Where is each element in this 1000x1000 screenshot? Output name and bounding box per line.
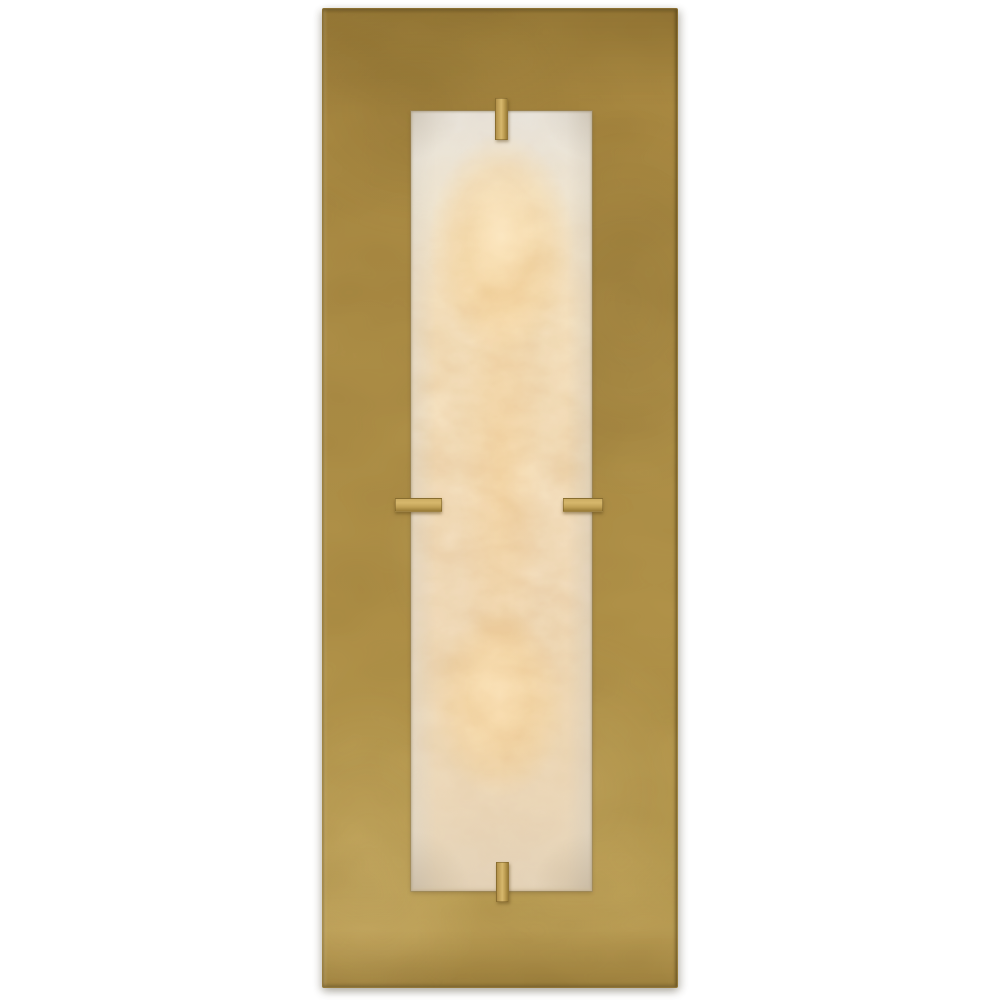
product-photo (0, 0, 1000, 1000)
clip-right (563, 498, 603, 512)
sconce-backplate (322, 8, 678, 988)
clip-bottom (496, 862, 509, 902)
clip-left (395, 498, 442, 512)
clip-top (495, 98, 508, 140)
